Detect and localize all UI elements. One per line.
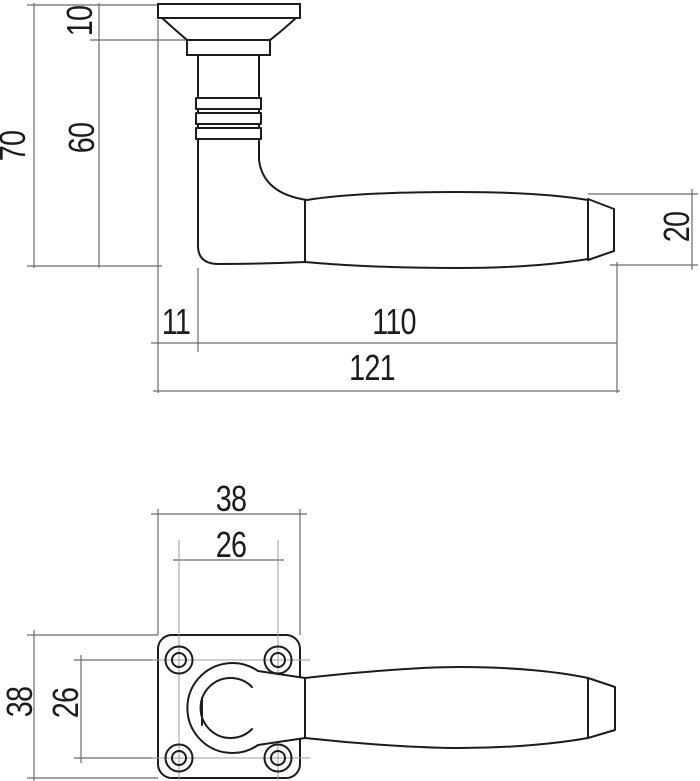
neck-grooves xyxy=(196,98,261,139)
side-view-handle xyxy=(158,4,614,268)
grip-bottom-edge xyxy=(219,259,588,268)
dim-label-rose-width: 38 xyxy=(216,481,246,517)
rose-flare-left xyxy=(162,18,187,40)
rose-flare-right xyxy=(270,18,296,40)
dim-label-lever-length: 110 xyxy=(372,304,416,340)
drawing-linework xyxy=(0,0,700,781)
neck-left-edge xyxy=(198,55,219,264)
dim-label-grip-diameter: 20 xyxy=(659,212,695,242)
stirrup-and-lever xyxy=(187,663,615,753)
dim-label-screw-spacing-h: 26 xyxy=(216,527,246,563)
technical-drawing-page: { "title": "Door handle dimension drawin… xyxy=(0,0,700,781)
grip-top-edge xyxy=(307,192,588,200)
dim-label-rose-offset: 11 xyxy=(162,304,190,340)
front-view-handle xyxy=(187,663,615,753)
dim-label-overall-length: 121 xyxy=(349,350,395,386)
grip-end-cap-side xyxy=(588,199,614,260)
dim-label-stem-height: 60 xyxy=(64,123,100,153)
dim-label-rose-height: 38 xyxy=(2,687,38,717)
rose-cap-side xyxy=(158,4,300,18)
drawing-canvas: 70 60 10 20 11 110 121 38 26 38 26 xyxy=(0,0,700,781)
dim-label-overall-height: 70 xyxy=(0,131,31,161)
dim-label-rose-cap-height: 10 xyxy=(62,6,98,36)
dim-label-screw-spacing-v: 26 xyxy=(48,688,84,718)
side-view-dimension-lines xyxy=(27,3,698,393)
rose-band xyxy=(187,40,270,55)
elbow-inner-curve xyxy=(259,160,307,200)
